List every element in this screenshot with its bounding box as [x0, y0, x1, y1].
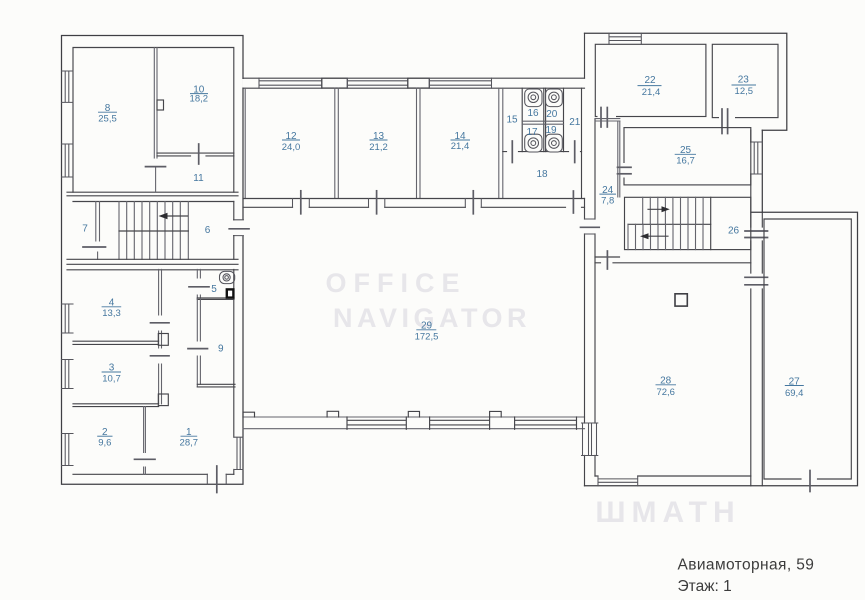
svg-text:69,4: 69,4: [785, 388, 804, 399]
svg-text:Авиамоторная, 59: Авиамоторная, 59: [678, 557, 815, 574]
svg-text:9: 9: [218, 343, 224, 354]
svg-text:21,4: 21,4: [642, 87, 661, 98]
svg-text:Этаж: 1: Этаж: 1: [678, 578, 732, 595]
svg-text:9,6: 9,6: [98, 438, 111, 449]
svg-text:21,4: 21,4: [451, 141, 470, 152]
svg-text:25,5: 25,5: [98, 114, 117, 125]
svg-text:16: 16: [527, 108, 539, 119]
svg-text:17: 17: [526, 127, 538, 138]
svg-text:15: 15: [506, 114, 518, 125]
svg-text:172,5: 172,5: [415, 332, 439, 343]
svg-text:OFFICE: OFFICE: [326, 268, 467, 298]
svg-text:18,2: 18,2: [190, 94, 209, 105]
svg-text:26: 26: [728, 225, 740, 236]
svg-text:18: 18: [536, 169, 548, 180]
svg-text:5: 5: [211, 284, 217, 295]
svg-text:20: 20: [546, 109, 558, 120]
svg-text:6: 6: [205, 225, 211, 236]
svg-text:7,8: 7,8: [601, 195, 614, 206]
svg-text:22: 22: [644, 75, 656, 86]
svg-text:16,7: 16,7: [676, 156, 695, 167]
svg-text:21: 21: [569, 117, 581, 128]
svg-text:7: 7: [82, 223, 88, 234]
svg-text:19: 19: [545, 125, 557, 136]
svg-text:11: 11: [193, 173, 204, 184]
svg-text:23: 23: [738, 75, 750, 86]
svg-text:24,0: 24,0: [282, 142, 301, 153]
svg-text:13,3: 13,3: [102, 308, 121, 319]
svg-text:10,7: 10,7: [102, 373, 121, 384]
svg-text:72,6: 72,6: [656, 387, 675, 398]
svg-text:28,7: 28,7: [180, 438, 199, 449]
svg-text:21,2: 21,2: [369, 142, 388, 153]
svg-text:12,5: 12,5: [735, 86, 754, 97]
svg-text:ШМАТН: ШМАТН: [595, 496, 740, 529]
